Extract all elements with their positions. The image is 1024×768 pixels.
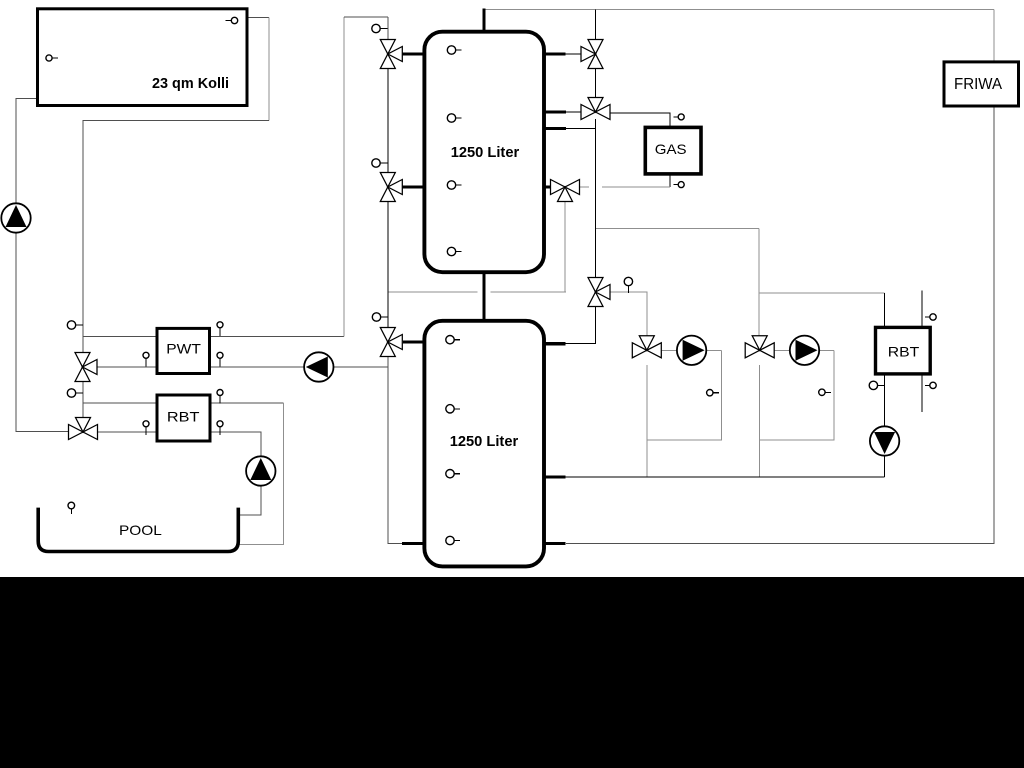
svg-text:RBT: RBT: [888, 343, 920, 359]
svg-text:POOL: POOL: [119, 522, 162, 538]
svg-text:GAS: GAS: [655, 141, 687, 157]
svg-text:PWT: PWT: [166, 340, 201, 356]
svg-text:1250 Liter: 1250 Liter: [450, 433, 519, 450]
svg-text:1250 Liter: 1250 Liter: [451, 144, 520, 161]
svg-text:FRIWA: FRIWA: [954, 76, 1002, 93]
svg-text:RBT: RBT: [167, 408, 200, 424]
svg-text:23 qm Kolli: 23 qm Kolli: [152, 75, 229, 92]
